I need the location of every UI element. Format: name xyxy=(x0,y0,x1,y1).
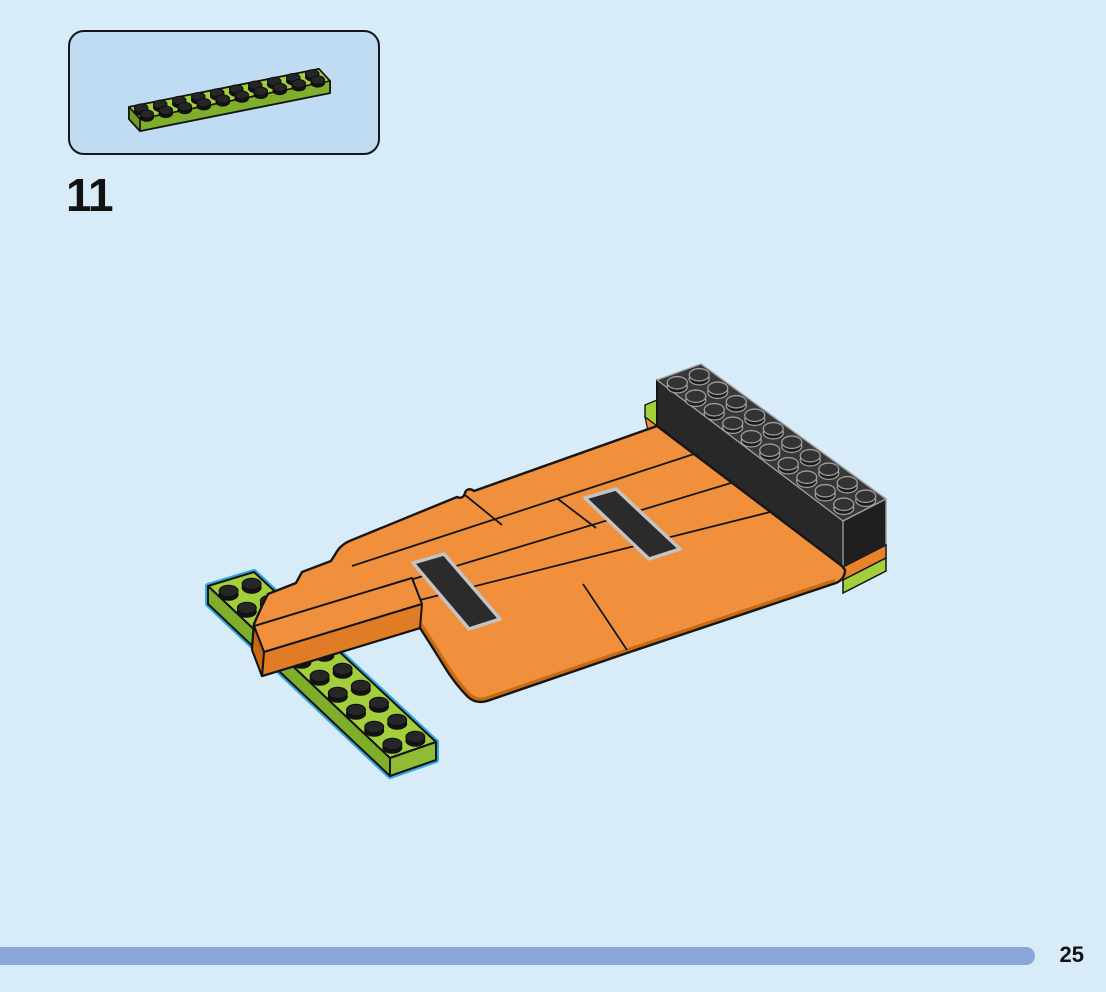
page-number: 25 xyxy=(1060,942,1084,968)
progress-bar xyxy=(0,947,1035,965)
build-illustration xyxy=(0,0,1106,992)
instruction-page: 11 xyxy=(0,0,1106,992)
